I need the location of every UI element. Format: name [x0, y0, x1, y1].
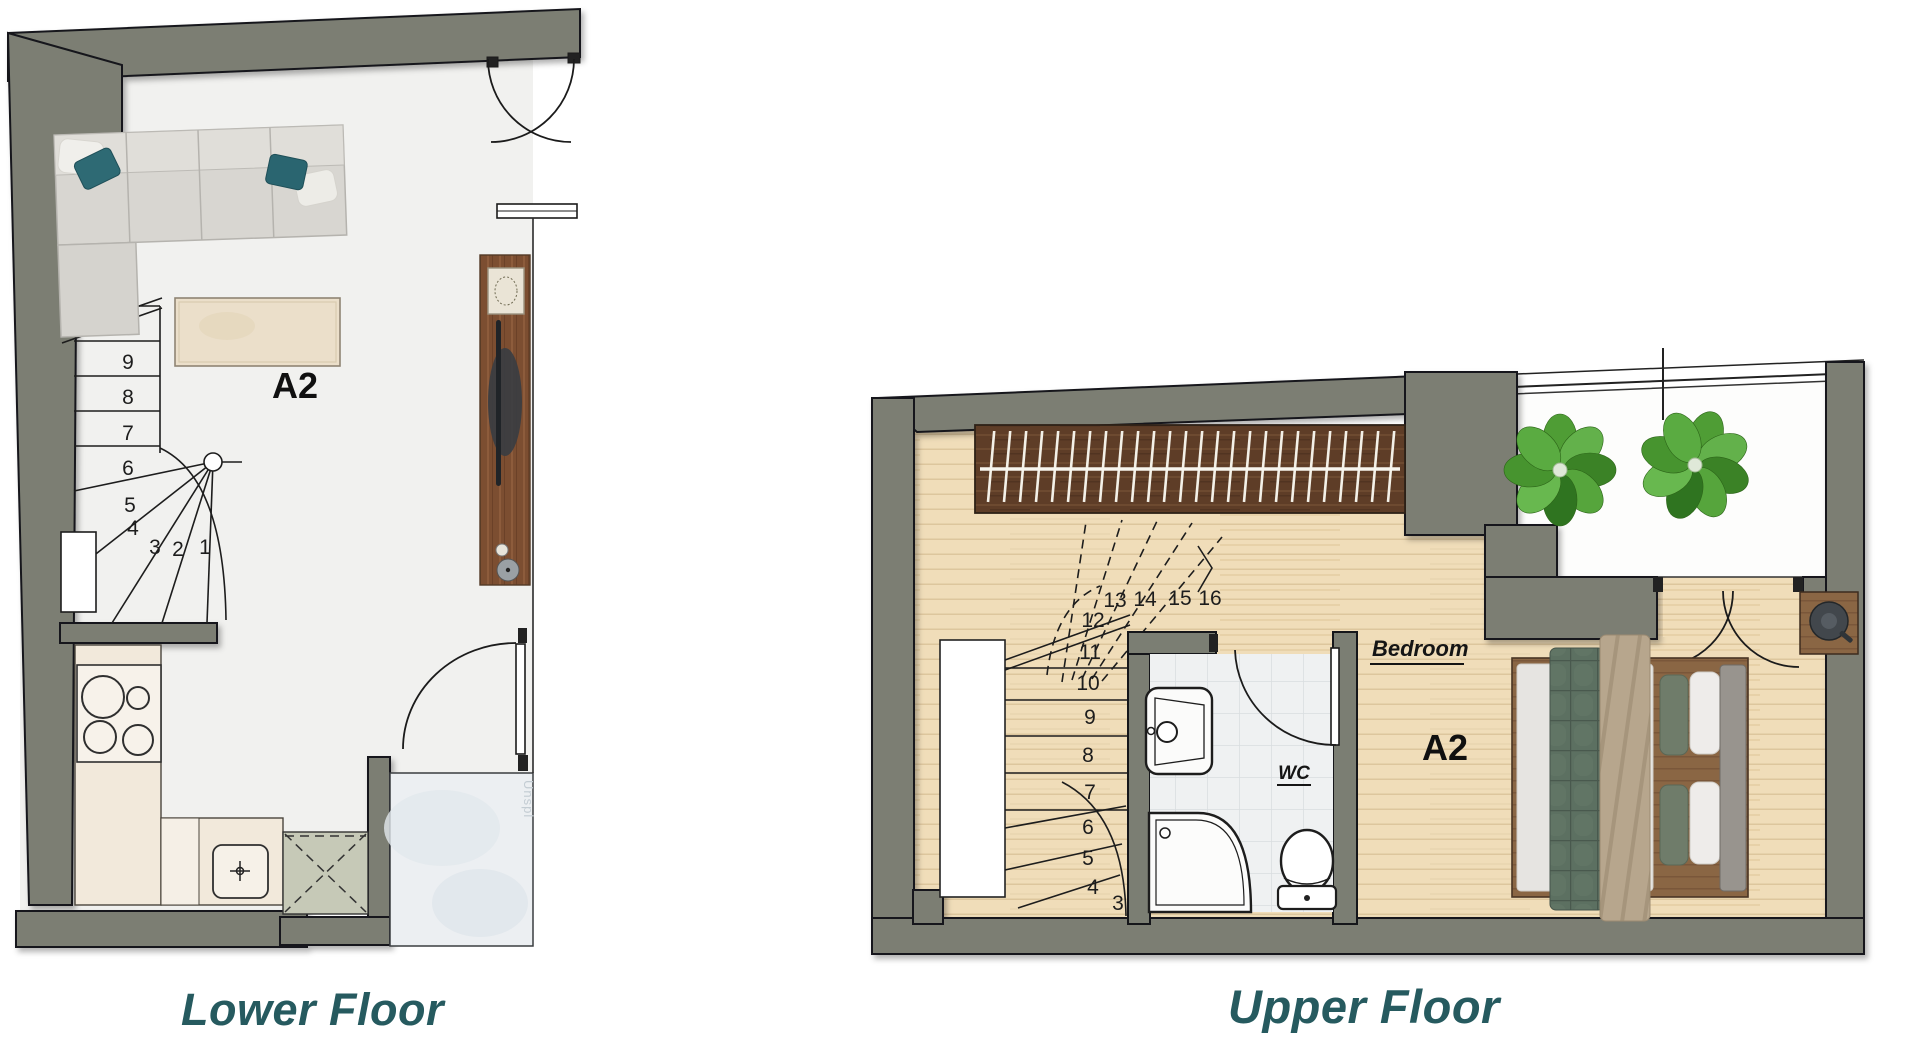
toilet-bowl: [1281, 830, 1333, 892]
potted-plant: [1504, 414, 1616, 526]
bathroom: [1128, 632, 1357, 924]
tv-screen: [496, 320, 501, 486]
svg-text:6: 6: [122, 457, 134, 480]
coffee-table: [175, 298, 340, 366]
white-pillow: [1690, 672, 1720, 754]
upper-floor-title: Upper Floor: [1228, 979, 1500, 1034]
entry-hall-floor: Unspl: [384, 773, 536, 946]
framed-art: [488, 268, 524, 314]
photo-watermark: Unspl: [521, 780, 536, 818]
stairwell-void: [940, 640, 1005, 897]
svg-text:9: 9: [122, 351, 134, 374]
door-leaf: [516, 644, 525, 754]
nightstand: [1800, 592, 1858, 654]
svg-text:3: 3: [1112, 892, 1124, 915]
green-pillow: [1660, 675, 1688, 755]
faucet: [1148, 728, 1155, 735]
svg-text:11: 11: [1079, 641, 1101, 664]
building-outline: [1517, 360, 1864, 374]
green-quilt: [1550, 648, 1604, 910]
door-leaf: [1331, 648, 1339, 745]
faucet: [1157, 722, 1177, 742]
wall-chunk: [1405, 372, 1517, 535]
svg-text:3: 3: [149, 536, 161, 559]
bottom-wall: [872, 918, 1864, 954]
svg-text:16: 16: [1198, 587, 1221, 610]
upper-floor-plan: 3 4 5 6 7 8 9 10 11 12 13 14 15 16: [760, 330, 1920, 980]
left-wall: [872, 398, 914, 928]
double-bed: [1512, 635, 1748, 921]
understair-wall: [60, 623, 217, 643]
wardrobe: [975, 425, 1405, 513]
green-pillow: [1660, 785, 1688, 865]
svg-text:2: 2: [172, 538, 184, 561]
svg-text:15: 15: [1168, 587, 1191, 610]
svg-text:14: 14: [1133, 588, 1157, 611]
right-wall: [1826, 362, 1864, 952]
svg-text:7: 7: [1084, 781, 1096, 804]
svg-text:5: 5: [124, 494, 136, 517]
understair-closet: [61, 532, 96, 612]
svg-text:10: 10: [1076, 672, 1099, 695]
svg-text:6: 6: [1082, 816, 1094, 839]
bottom-wall: [16, 911, 307, 947]
unit-label-lower: A2: [272, 365, 318, 406]
floorplan-page: Unspl 1 2 3 4 5 6 7 8 9: [0, 0, 1920, 1045]
svg-text:1: 1: [199, 536, 211, 559]
stair-step-wall: [913, 890, 943, 924]
balcony-band-left: [1485, 577, 1657, 639]
stair-start-marker: [204, 453, 222, 471]
door-jamb: [1653, 577, 1663, 592]
svg-text:8: 8: [1082, 744, 1094, 767]
wc-label: WC: [1278, 763, 1310, 784]
svg-text:9: 9: [1084, 706, 1096, 729]
door-jamb: [1209, 634, 1218, 652]
svg-text:4: 4: [1087, 876, 1099, 899]
svg-text:4: 4: [127, 517, 139, 540]
unit-label-upper: A2: [1422, 727, 1468, 768]
svg-text:12: 12: [1081, 609, 1104, 632]
lower-floor-title: Lower Floor: [181, 984, 444, 1036]
decor-item: [496, 544, 508, 556]
door-jamb: [518, 755, 528, 771]
door-jamb: [518, 628, 527, 643]
entry-wall-foot: [280, 917, 390, 945]
lower-floor-plan: Unspl 1 2 3 4 5 6 7 8 9: [2, 8, 602, 960]
svg-text:13: 13: [1103, 589, 1126, 612]
svg-text:5: 5: [1082, 847, 1094, 870]
bedroom-label: Bedroom: [1372, 636, 1469, 661]
sofa-chaise: [58, 242, 139, 337]
balcony-pier: [1485, 525, 1557, 577]
door-jamb: [1793, 577, 1803, 592]
svg-text:8: 8: [122, 386, 134, 409]
tv-console: [480, 255, 530, 585]
svg-text:7: 7: [122, 422, 134, 445]
white-pillow: [1690, 782, 1720, 864]
headboard: [1720, 665, 1746, 891]
tan-blanket: [1600, 635, 1650, 921]
tv-shadow: [488, 348, 522, 456]
